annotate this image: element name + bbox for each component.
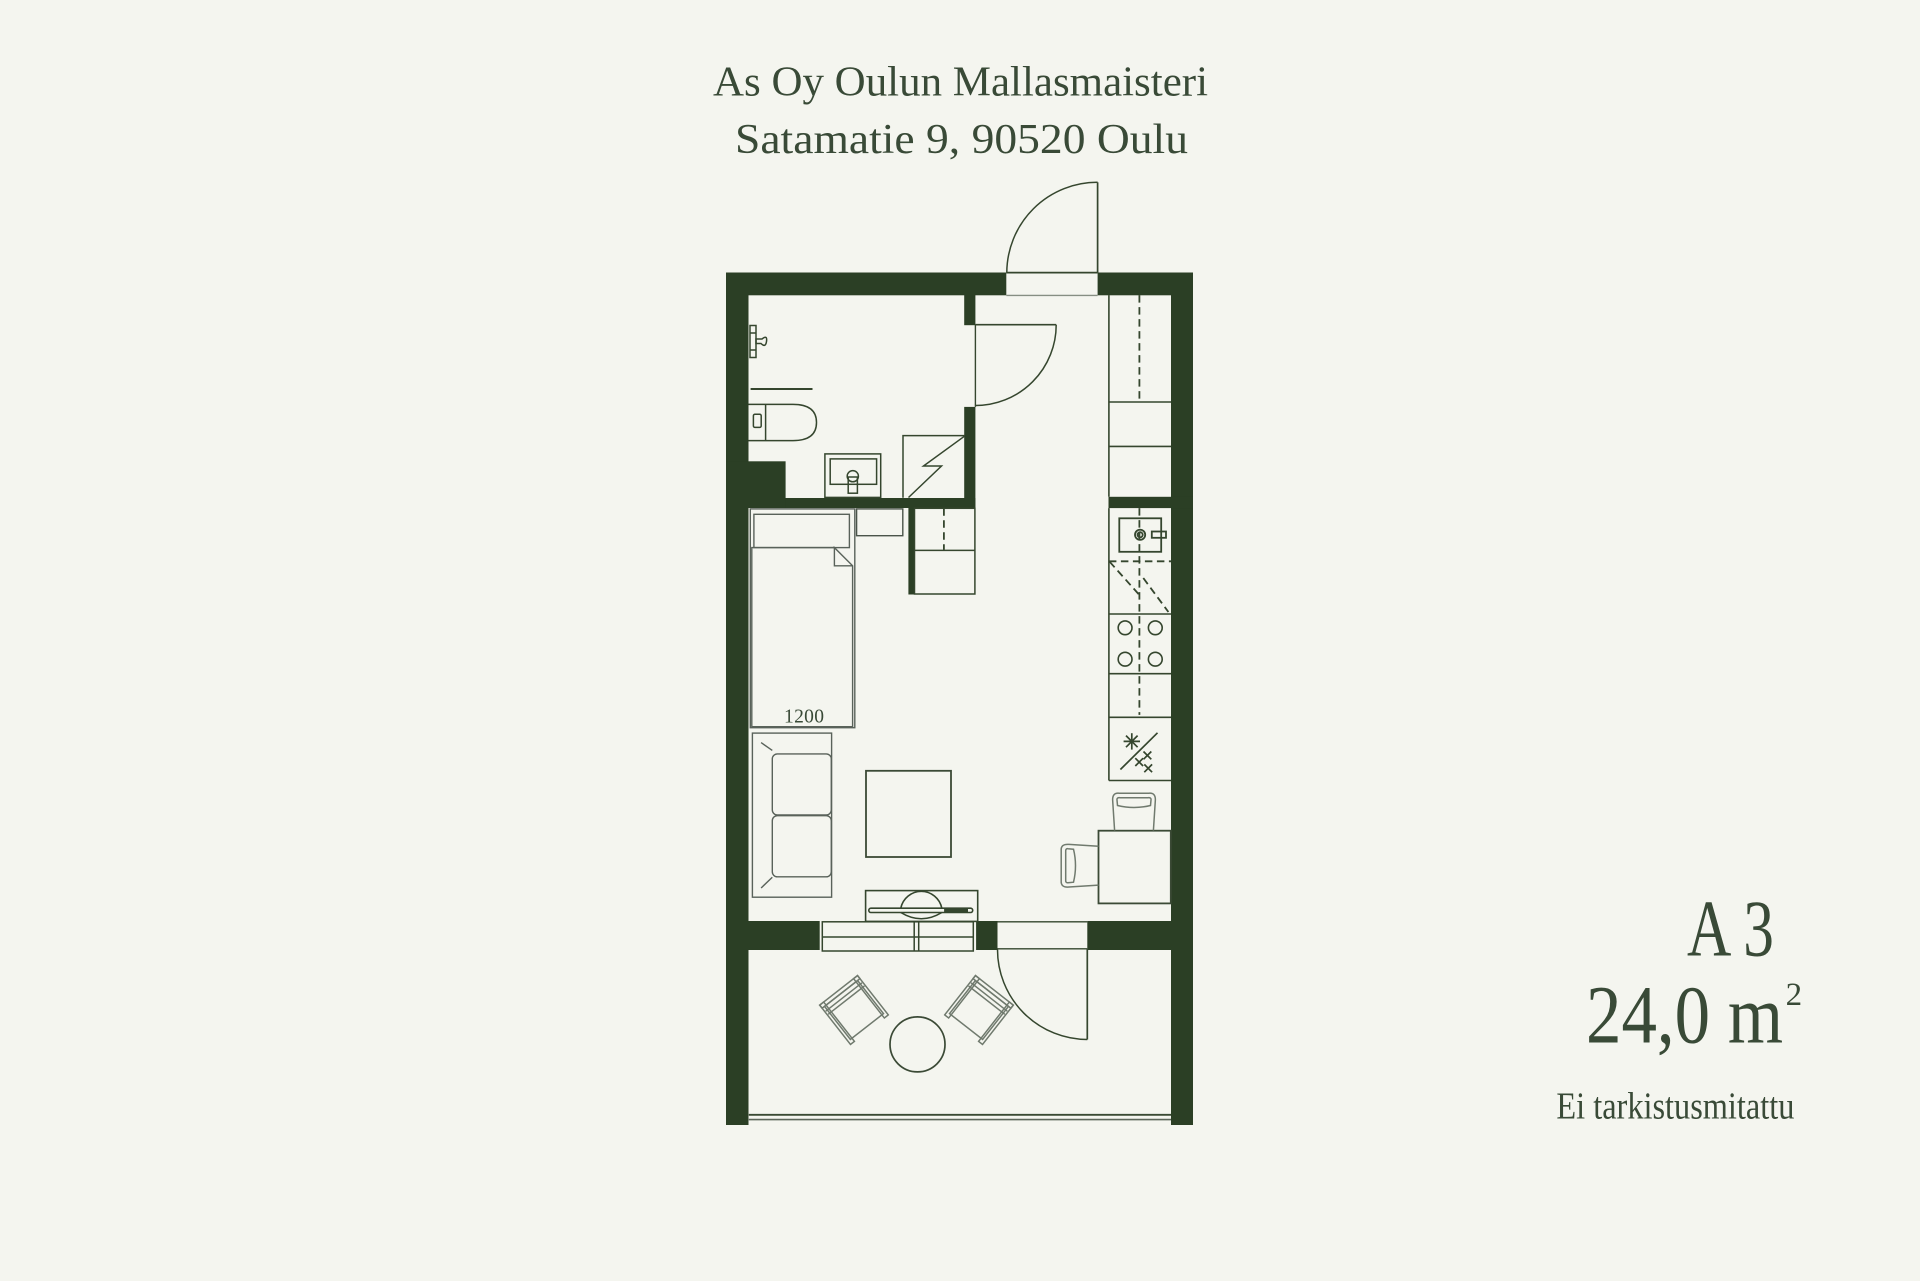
svg-text:Ei tarkistusmitattu: Ei tarkistusmitattu — [1556, 1085, 1794, 1127]
svg-text:1200: 1200 — [784, 707, 824, 728]
svg-text:24,0 m: 24,0 m — [1586, 969, 1783, 1061]
svg-text:A 3: A 3 — [1687, 884, 1774, 974]
svg-text:2: 2 — [1786, 977, 1803, 1013]
svg-text:Satamatie 9, 90520 Oulu: Satamatie 9, 90520 Oulu — [735, 116, 1188, 163]
svg-text:As Oy Oulun Mallasmaisteri: As Oy Oulun Mallasmaisteri — [713, 58, 1208, 105]
